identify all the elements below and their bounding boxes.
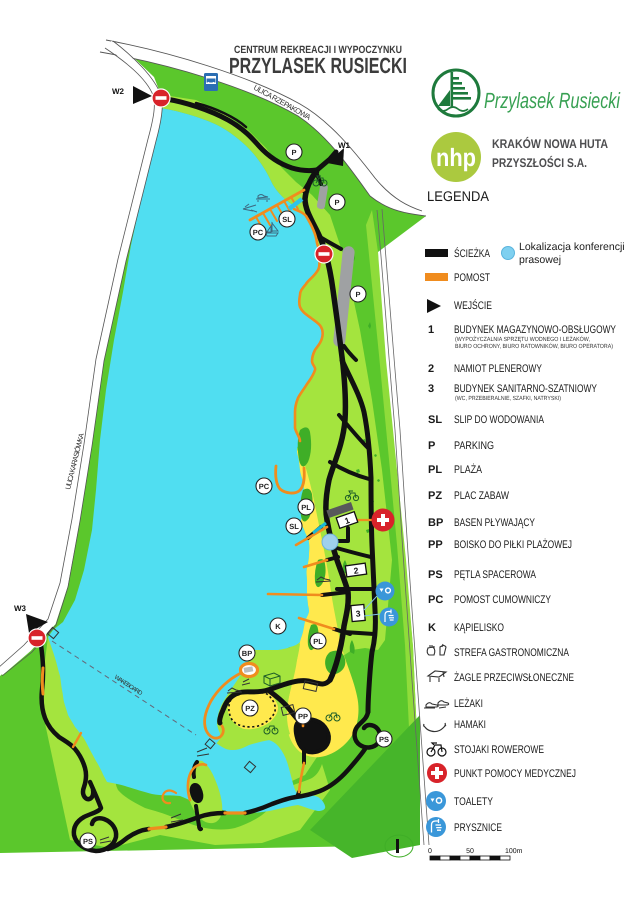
svg-text:HAMAKI: HAMAKI [454,719,486,731]
svg-text:BIURO OCHRONY, BIURO RATOWNIKÓ: BIURO OCHRONY, BIURO RATOWNIKÓW, BIURO O… [455,342,613,350]
svg-text:nhp: nhp [436,144,476,172]
svg-text:P: P [428,440,435,452]
svg-text:PLAC ZABAW: PLAC ZABAW [454,490,509,502]
svg-text:K: K [428,622,436,634]
svg-text:POMOST: POMOST [454,272,490,284]
svg-text:BUDYNEK MAGAZYNOWO-OBSŁUGOWY: BUDYNEK MAGAZYNOWO-OBSŁUGOWY [454,324,616,336]
svg-text:PP: PP [298,712,308,721]
svg-text:PC: PC [259,482,270,491]
svg-text:PP: PP [428,539,443,551]
svg-text:3: 3 [428,383,434,395]
svg-text:K: K [275,622,281,631]
svg-text:ŻAGLE PRZECIWSŁONECZNE: ŻAGLE PRZECIWSŁONECZNE [454,671,574,684]
svg-text:LEGENDA: LEGENDA [427,188,490,204]
svg-text:SL: SL [428,414,442,426]
svg-text:SLIP DO WODOWANIA: SLIP DO WODOWANIA [454,414,544,426]
svg-text:(WYPOŻYCZALNIA SPRZĘTU WODNEGO: (WYPOŻYCZALNIA SPRZĘTU WODNEGO I LEŻAKÓW… [455,335,590,343]
svg-text:PC: PC [253,228,264,237]
svg-text:W3: W3 [14,604,27,613]
svg-text:BUDYNEK SANITARNO-SZATNIOWY: BUDYNEK SANITARNO-SZATNIOWY [454,383,598,395]
svg-text:P: P [334,198,339,207]
svg-text:PRZYLASEK RUSIECKI: PRZYLASEK RUSIECKI [229,53,407,78]
svg-text:50: 50 [466,848,474,855]
svg-text:PC: PC [428,594,443,606]
svg-text:NAMIOT PLENEROWY: NAMIOT PLENEROWY [454,363,542,375]
svg-text:PRYSZNICE: PRYSZNICE [454,822,502,834]
svg-text:2: 2 [428,363,434,375]
svg-text:prasowej: prasowej [519,254,561,266]
svg-text:BASEN PŁYWAJĄCY: BASEN PŁYWAJĄCY [454,517,535,529]
svg-text:P: P [291,148,296,157]
svg-text:SL: SL [282,215,292,224]
svg-text:1: 1 [428,324,434,336]
svg-text:BP: BP [428,517,443,529]
svg-text:STREFA GASTRONOMICZNA: STREFA GASTRONOMICZNA [454,647,569,659]
svg-text:PL: PL [313,637,323,646]
svg-text:PĘTLA SPACEROWA: PĘTLA SPACEROWA [454,569,536,581]
svg-text:KĄPIELISKO: KĄPIELISKO [454,622,504,634]
svg-text:WEJŚCIE: WEJŚCIE [454,299,492,312]
svg-text:PL: PL [301,503,311,512]
svg-text:W2: W2 [112,87,125,96]
svg-text:PRZYSZŁOŚCI S.A.: PRZYSZŁOŚCI S.A. [492,155,587,170]
svg-text:ŚCIEŻKA: ŚCIEŻKA [454,247,490,260]
svg-text:(WC, PRZEBIERALNIE, SZAFKI, NA: (WC, PRZEBIERALNIE, SZAFKI, NATRYSKI) [455,395,561,402]
svg-text:100m: 100m [505,848,523,855]
svg-text:LEŻAKI: LEŻAKI [454,697,483,710]
svg-text:BOISKO DO PIŁKI PLAŻOWEJ: BOISKO DO PIŁKI PLAŻOWEJ [454,538,572,551]
svg-text:POMOST CUMOWNICZY: POMOST CUMOWNICZY [454,594,552,606]
svg-text:PS: PS [379,735,389,744]
svg-text:PZ: PZ [428,490,442,502]
svg-text:PS: PS [83,837,93,846]
svg-text:Przylasek Rusiecki: Przylasek Rusiecki [484,88,621,113]
svg-text:PUNKT POMOCY MEDYCZNEJ: PUNKT POMOCY MEDYCZNEJ [454,768,576,780]
svg-text:PL: PL [428,464,442,476]
svg-text:P: P [355,290,360,299]
svg-text:BP: BP [242,649,252,658]
svg-text:PLAŻA: PLAŻA [454,463,483,476]
svg-text:PS: PS [428,569,443,581]
svg-text:PARKING: PARKING [454,440,494,452]
svg-text:STOJAKI ROWEROWE: STOJAKI ROWEROWE [454,744,544,756]
svg-text:W1: W1 [338,141,351,150]
svg-text:SL: SL [289,522,299,531]
svg-text:0: 0 [428,848,432,855]
svg-text:TOALETY: TOALETY [454,796,494,808]
svg-text:KRAKÓW NOWA HUTA: KRAKÓW NOWA HUTA [492,136,608,151]
svg-text:PZ: PZ [245,704,255,713]
svg-text:Lokalizacja konferencji: Lokalizacja konferencji [519,241,625,253]
